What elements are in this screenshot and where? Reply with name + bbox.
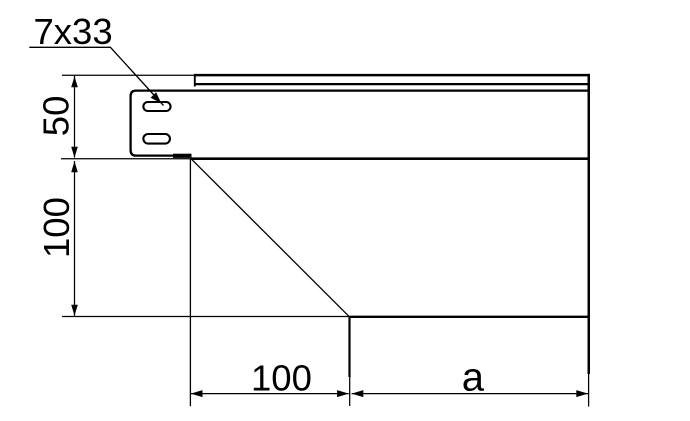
svg-text:50: 50 xyxy=(36,96,77,137)
svg-text:100: 100 xyxy=(251,357,312,398)
svg-text:7x33: 7x33 xyxy=(34,11,113,52)
svg-text:100: 100 xyxy=(36,197,77,258)
svg-text:a: a xyxy=(462,355,485,399)
